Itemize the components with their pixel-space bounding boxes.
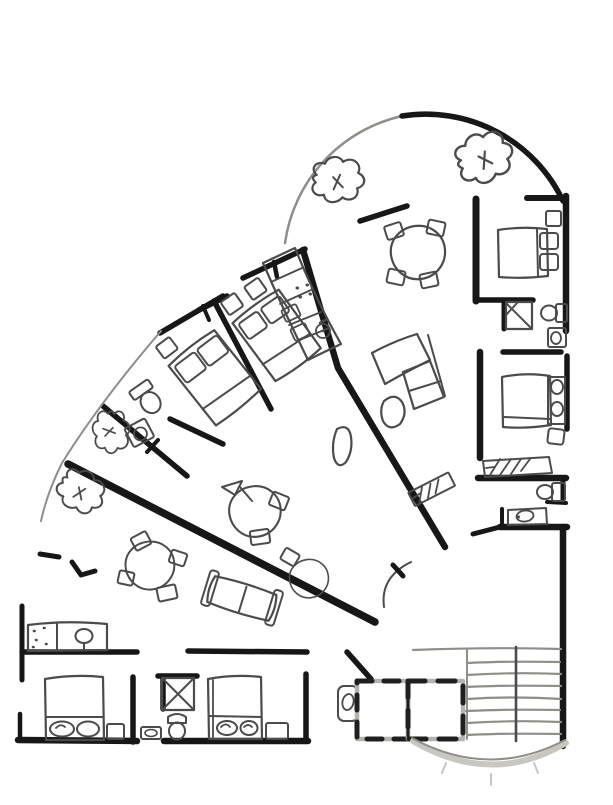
ottoman-oval xyxy=(381,397,404,428)
wall-stub-arc-b xyxy=(72,562,95,575)
sofa-l-shaped xyxy=(372,334,445,409)
staircase xyxy=(413,647,561,741)
wall-stub-arc-a xyxy=(40,554,59,557)
bed-mid-right xyxy=(502,374,565,445)
nightstand-c xyxy=(107,724,124,739)
bed-bottom-c xyxy=(45,676,104,740)
dome-dining-table xyxy=(384,219,446,288)
sofa-two-seat xyxy=(200,570,283,627)
door-swing-arc xyxy=(384,562,411,607)
nightstand-d xyxy=(266,723,288,739)
toilet-bedroom-a xyxy=(129,379,166,418)
side-table-blob xyxy=(333,427,351,465)
bed-top-right xyxy=(498,211,561,278)
plant-1 xyxy=(309,154,367,206)
dome-arc-outline xyxy=(285,116,402,243)
floor-plan-page xyxy=(0,0,613,805)
outer-left-arc xyxy=(41,331,161,521)
elevator-1 xyxy=(357,681,408,739)
elevator-2 xyxy=(408,681,463,739)
bed-bottom-d xyxy=(208,676,262,739)
bed-rotated-b xyxy=(219,270,322,383)
floor-plan-svg xyxy=(0,0,613,805)
wall-wc-nook xyxy=(547,478,566,503)
hatched-shelf-mid-right xyxy=(483,457,552,477)
shower-top-right xyxy=(506,302,532,329)
sink-hall xyxy=(508,508,547,525)
table-round-2 xyxy=(222,481,290,545)
shower-bottom xyxy=(162,678,194,710)
wall-elevator-diag xyxy=(347,652,371,679)
sink-bottom xyxy=(141,727,161,739)
stair-landing-curve xyxy=(412,738,566,785)
wall-kitchen-top xyxy=(243,249,305,278)
dome-partition-stub-wall xyxy=(360,206,407,221)
toilet-bottom xyxy=(168,714,186,740)
table-round-3 xyxy=(117,531,187,602)
reception-desk xyxy=(28,622,107,651)
